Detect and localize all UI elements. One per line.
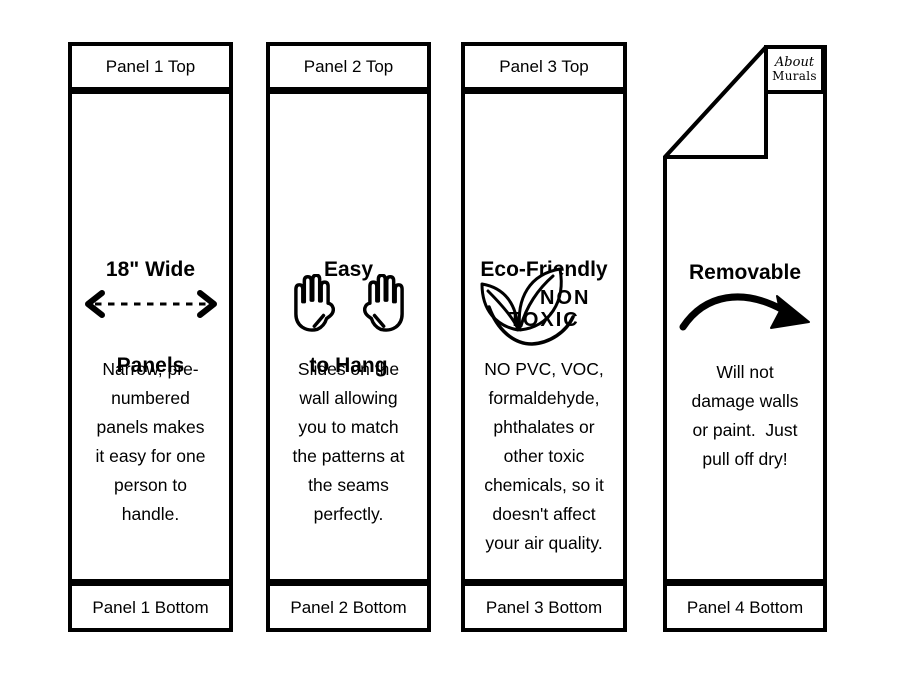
panel-3-top-label: Panel 3 Top (499, 58, 588, 75)
panel-3-bottom-label-box: Panel 3 Bottom (461, 582, 627, 632)
peel-curved-arrow-icon (677, 281, 813, 333)
panel-3-icon-block: NON TOXIC (461, 260, 627, 348)
panel-2-bottom-label-box: Panel 2 Bottom (266, 582, 431, 632)
folded-corner-flap (665, 47, 766, 157)
panel-1-icon-block (68, 260, 233, 348)
two-hands-icon (289, 274, 409, 334)
panel-1-description: Narrow, pre- numbered panels makes it ea… (68, 355, 233, 529)
brand-logo: About Murals (766, 47, 823, 92)
panel-1-bottom-label-box: Panel 1 Bottom (68, 582, 233, 632)
wallpaper-panels-infographic: Panel 1 Top 18" Wide Panels Narrow, pre-… (0, 0, 900, 675)
panel-1-top-label: Panel 1 Top (106, 58, 195, 75)
brand-name-serif: Murals (772, 70, 817, 83)
panel-3-description: NO PVC, VOC, formaldehyde, phthalates or… (461, 355, 627, 558)
panel-2-icon-block (266, 260, 431, 348)
non-toxic-text-line-1: NON (540, 288, 590, 308)
non-toxic-icon: NON TOXIC (474, 260, 614, 348)
open-hand-icon (289, 274, 335, 334)
panel-3: Panel 3 Top Eco-Friendly NON TOXIC NO PV… (461, 42, 627, 632)
open-hand-icon (363, 274, 409, 334)
panel-2-top-label-box: Panel 2 Top (266, 42, 431, 91)
panel-4: About Murals Removable Will not damage w… (663, 45, 827, 632)
non-toxic-text-line-2: TOXIC (509, 310, 580, 330)
panel-1-bottom-label: Panel 1 Bottom (92, 599, 208, 616)
panel-1: Panel 1 Top 18" Wide Panels Narrow, pre-… (68, 42, 233, 632)
panel-2-description: Slides on the wall allowing you to match… (266, 355, 431, 529)
panel-3-bottom-label: Panel 3 Bottom (486, 599, 602, 616)
panel-1-top-label-box: Panel 1 Top (68, 42, 233, 91)
panel-2-bottom-label: Panel 2 Bottom (290, 599, 406, 616)
panel-2-top-label: Panel 2 Top (304, 58, 393, 75)
width-dashed-arrow-icon (75, 288, 227, 320)
panel-4-bottom-label: Panel 4 Bottom (687, 599, 803, 616)
brand-name-script: About (775, 56, 814, 70)
panel-3-top-label-box: Panel 3 Top (461, 42, 627, 91)
panel-4-description: Will not damage walls or paint. Just pul… (663, 358, 827, 474)
panel-4-icon-block (663, 263, 827, 351)
panel-2: Panel 2 Top Easy to Hang Sl (266, 42, 431, 632)
panel-4-bottom-label-box: Panel 4 Bottom (663, 582, 827, 632)
